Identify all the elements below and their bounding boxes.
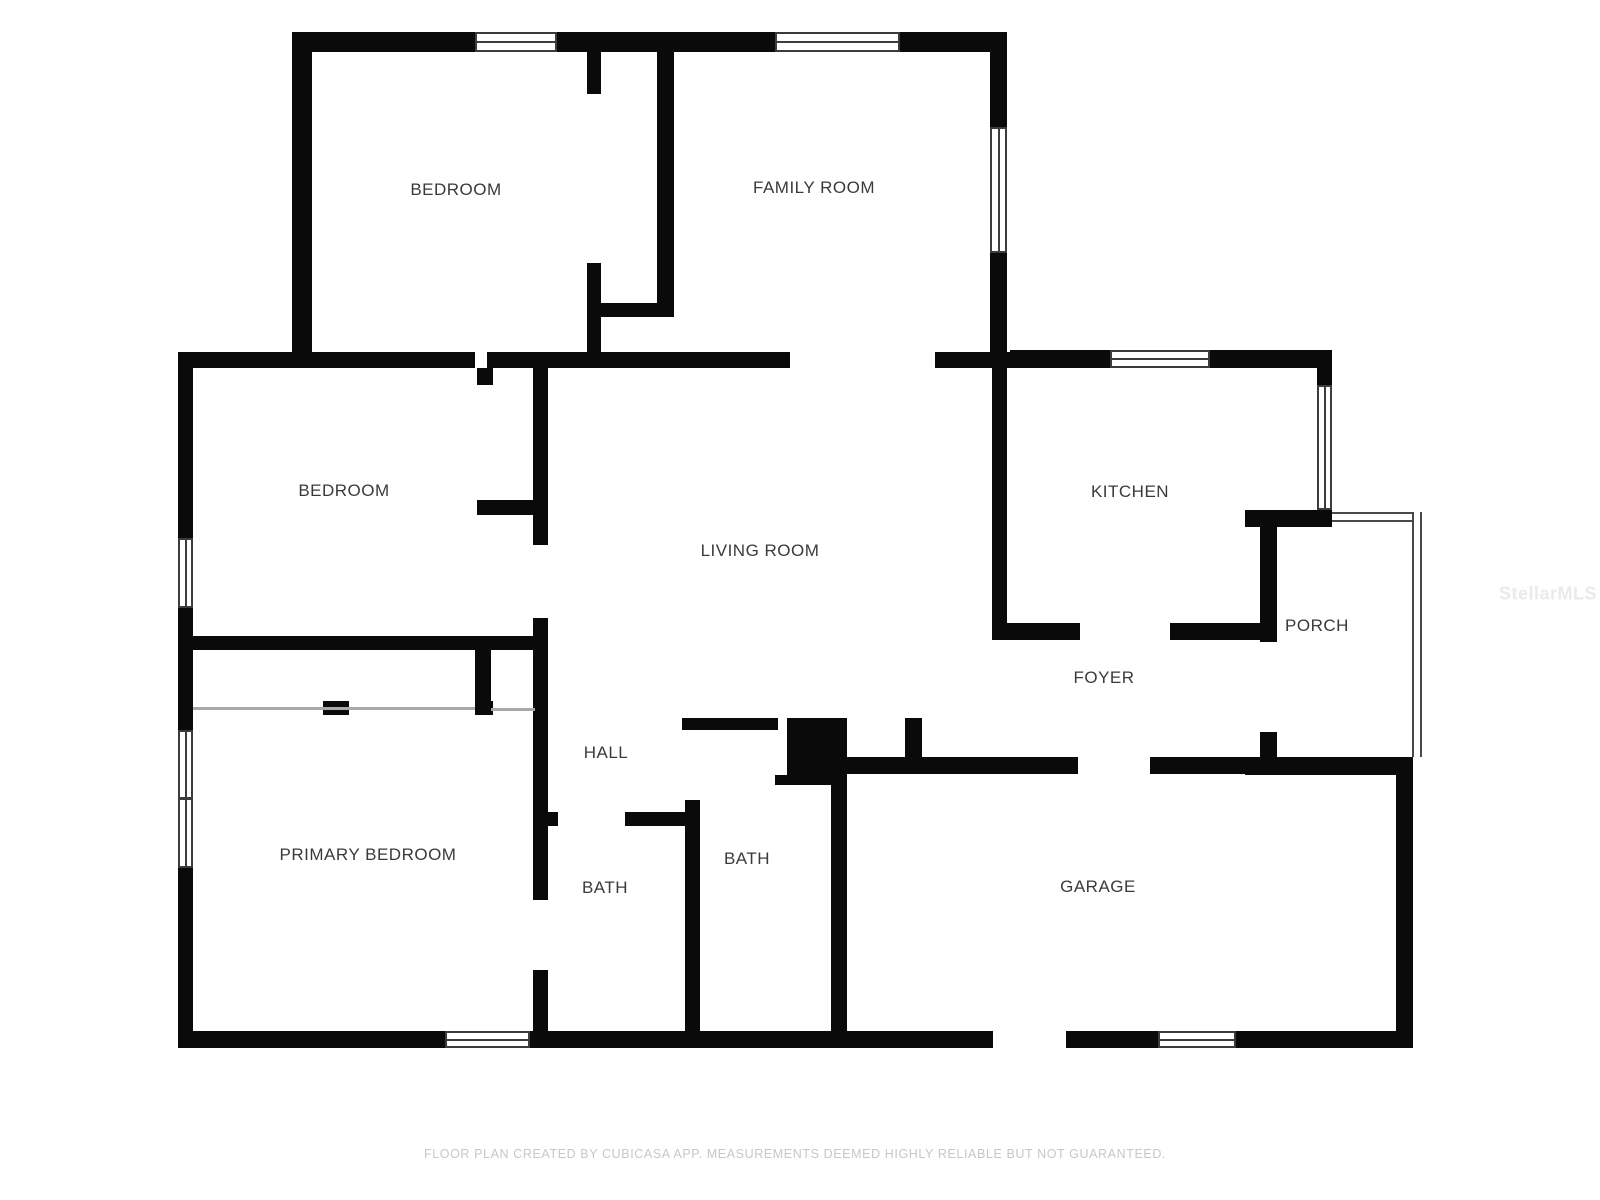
wall-segment	[178, 608, 193, 730]
wall-segment	[477, 500, 545, 515]
sliding-door-line	[193, 707, 475, 710]
window-pane-line	[1160, 1039, 1234, 1041]
wall-segment	[905, 718, 922, 757]
wall-segment	[992, 623, 1080, 640]
window-pane-line	[1112, 358, 1208, 360]
room-label-living-room: LIVING ROOM	[701, 541, 820, 561]
wall-segment	[178, 352, 475, 368]
room-label-bedroom-mid: BEDROOM	[298, 481, 389, 501]
wall-segment	[1066, 1031, 1158, 1048]
wall-segment	[1245, 510, 1332, 527]
floor-plan: BEDROOMFAMILY ROOMBEDROOMLIVING ROOMKITC…	[0, 0, 1600, 1200]
wall-segment	[1236, 1031, 1413, 1048]
window	[178, 730, 193, 868]
room-label-family-room: FAMILY ROOM	[753, 178, 875, 198]
wall-segment	[587, 52, 601, 94]
wall-segment	[682, 718, 778, 730]
room-label-hall: HALL	[584, 743, 629, 763]
window	[1158, 1031, 1236, 1048]
wall-segment	[775, 775, 833, 785]
porch-screen-band	[1332, 512, 1422, 522]
room-label-foyer: FOYER	[1073, 668, 1134, 688]
wall-segment	[193, 636, 545, 650]
footer-disclaimer: FLOOR PLAN CREATED BY CUBICASA APP. MEAS…	[424, 1147, 1166, 1161]
wall-segment	[625, 812, 700, 826]
wall-segment	[487, 352, 790, 368]
wall-segment	[1260, 522, 1277, 642]
window-divider	[180, 797, 191, 800]
window-pane-line	[477, 41, 555, 43]
room-label-bath-hall: BATH	[582, 878, 628, 898]
wall-segment	[292, 32, 312, 362]
room-label-garage: GARAGE	[1060, 877, 1136, 897]
window	[1317, 385, 1332, 510]
porch-screen-band	[1412, 512, 1422, 757]
window	[445, 1031, 530, 1048]
wall-segment	[1396, 757, 1413, 1031]
wall-segment	[1150, 757, 1245, 774]
window-pane-line	[447, 1039, 528, 1041]
wall-segment	[548, 812, 558, 826]
window	[775, 32, 900, 52]
wall-segment	[657, 42, 674, 317]
window	[1110, 350, 1210, 368]
wall-segment	[845, 757, 1078, 774]
wall-segment	[1210, 350, 1332, 368]
wall-segment	[530, 1031, 993, 1048]
wall-segment	[178, 868, 193, 1048]
window-pane-line	[998, 129, 1000, 251]
wall-segment	[587, 303, 657, 317]
wall-segment	[990, 32, 1007, 127]
window-pane-line	[185, 540, 187, 606]
window	[475, 32, 557, 52]
wall-segment	[992, 368, 1007, 633]
wall-segment	[990, 253, 1007, 368]
wall-segment	[1010, 350, 1110, 368]
room-label-kitchen: KITCHEN	[1091, 482, 1169, 502]
wall-segment	[477, 368, 493, 385]
wall-segment	[178, 1031, 445, 1048]
room-label-primary-bedroom: PRIMARY BEDROOM	[280, 845, 457, 865]
room-label-bath-center: BATH	[724, 849, 770, 869]
wall-segment	[292, 32, 475, 52]
wall-segment	[787, 718, 833, 775]
window	[990, 127, 1007, 253]
window	[178, 538, 193, 608]
window-pane-line	[1324, 387, 1326, 508]
wall-segment	[533, 368, 548, 545]
sliding-door-line	[491, 708, 535, 711]
watermark: StellarMLS	[1499, 584, 1597, 605]
wall-segment	[1170, 623, 1263, 640]
room-label-porch: PORCH	[1285, 616, 1349, 636]
wall-segment	[1260, 732, 1277, 758]
wall-segment	[1317, 350, 1332, 385]
wall-segment	[178, 352, 193, 538]
wall-segment	[831, 718, 847, 1031]
wall-segment	[1245, 757, 1413, 775]
wall-segment	[685, 800, 700, 1031]
wall-segment	[533, 970, 548, 1031]
window-pane-line	[777, 41, 898, 43]
wall-segment	[533, 618, 548, 900]
room-label-bedroom-top: BEDROOM	[410, 180, 501, 200]
